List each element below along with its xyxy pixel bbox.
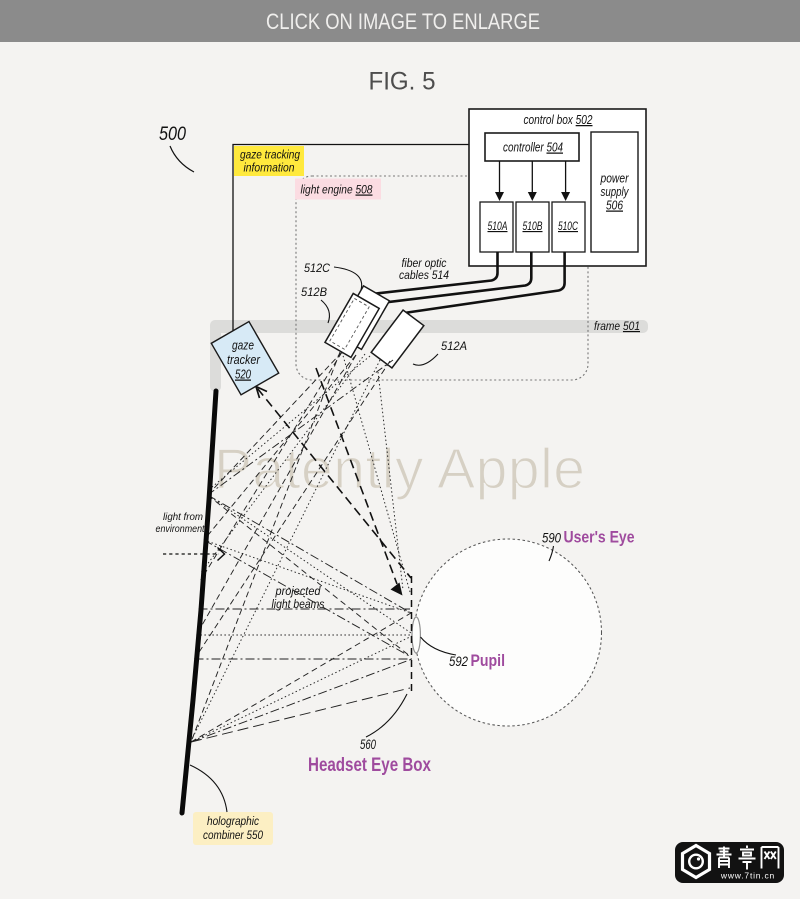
svg-text:510A: 510A xyxy=(488,221,508,233)
svg-text:510C: 510C xyxy=(558,221,578,233)
svg-text:control box 502: control box 502 xyxy=(524,113,593,127)
svg-text:510B: 510B xyxy=(523,221,543,233)
svg-text:590: 590 xyxy=(542,531,561,546)
svg-text:light from: light from xyxy=(163,511,203,523)
svg-text:supply: supply xyxy=(601,185,630,199)
svg-text:Pupil: Pupil xyxy=(471,651,506,670)
svg-text:512A: 512A xyxy=(441,339,467,353)
svg-text:light engine 508: light engine 508 xyxy=(301,183,373,197)
svg-text:projected: projected xyxy=(275,584,321,598)
svg-text:512B: 512B xyxy=(301,285,327,299)
svg-text:506: 506 xyxy=(606,199,623,213)
svg-text:www.7tin.cn: www.7tin.cn xyxy=(720,871,775,881)
svg-text:environment: environment xyxy=(156,523,206,535)
svg-text:frame 501: frame 501 xyxy=(594,321,640,333)
svg-text:information: information xyxy=(244,161,295,175)
svg-text:500: 500 xyxy=(159,124,186,145)
svg-text:controller 504: controller 504 xyxy=(503,141,563,155)
svg-text:light beams: light beams xyxy=(272,597,325,611)
svg-text:gaze tracking: gaze tracking xyxy=(240,148,300,162)
svg-text:520: 520 xyxy=(235,368,251,382)
svg-text:560: 560 xyxy=(360,737,376,752)
svg-text:gaze: gaze xyxy=(232,339,254,353)
svg-text:User's Eye: User's Eye xyxy=(564,528,635,547)
svg-text:Headset Eye Box: Headset Eye Box xyxy=(308,754,431,776)
svg-text:FIG. 5: FIG. 5 xyxy=(369,68,436,96)
svg-text:holographic: holographic xyxy=(207,816,259,828)
svg-text:592: 592 xyxy=(449,654,468,669)
svg-text:combiner 550: combiner 550 xyxy=(203,830,264,842)
svg-text:CLICK ON IMAGE TO ENLARGE: CLICK ON IMAGE TO ENLARGE xyxy=(266,9,540,34)
svg-text:512C: 512C xyxy=(304,261,330,275)
svg-text:cables 514: cables 514 xyxy=(399,268,449,282)
svg-text:tracker: tracker xyxy=(227,353,261,367)
svg-text:power: power xyxy=(600,172,630,186)
